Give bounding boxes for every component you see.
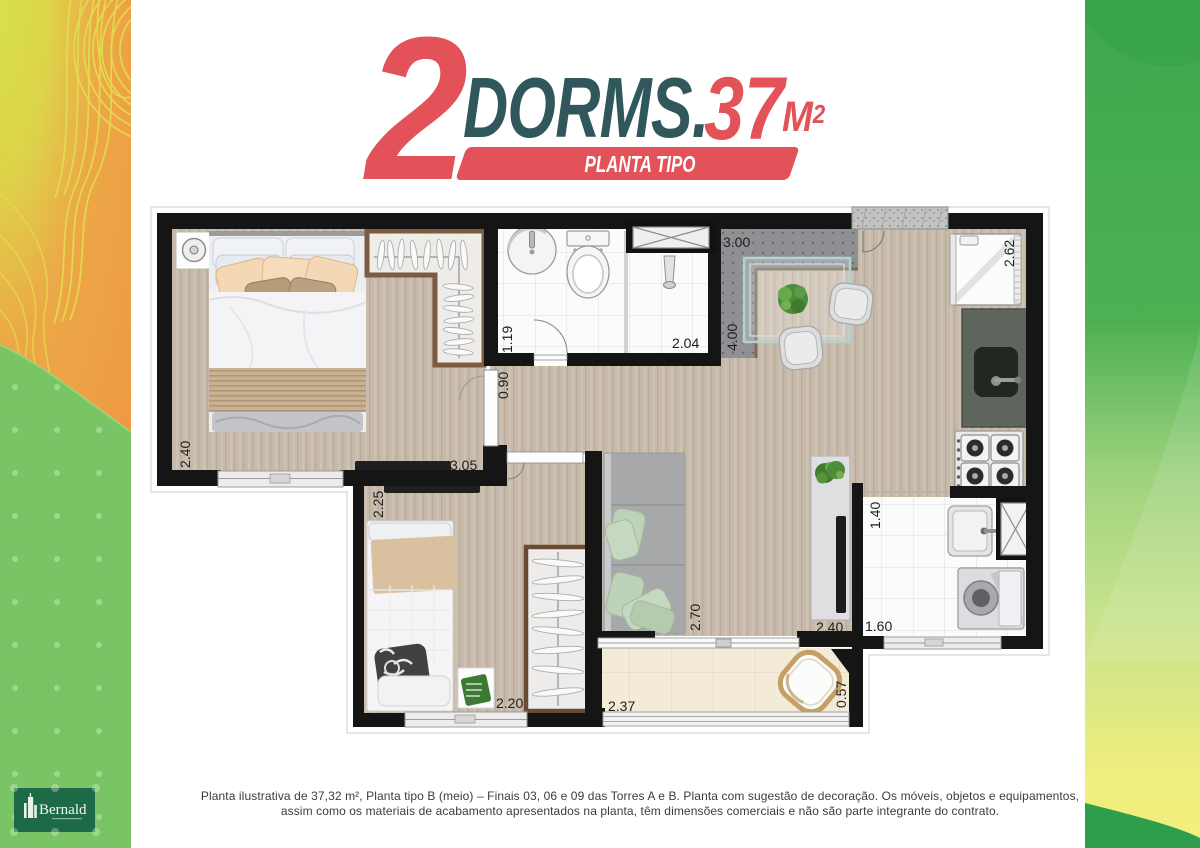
svg-text:2.37: 2.37: [608, 698, 635, 714]
svg-text:0.57: 0.57: [833, 681, 849, 708]
svg-text:Bernald: Bernald: [39, 802, 87, 818]
svg-text:2.62: 2.62: [1001, 240, 1017, 267]
svg-text:2.70: 2.70: [687, 604, 703, 631]
svg-text:2.20: 2.20: [496, 695, 523, 711]
svg-text:2.04: 2.04: [672, 335, 699, 351]
svg-text:3.05: 3.05: [450, 457, 477, 473]
svg-text:0.90: 0.90: [495, 372, 511, 399]
svg-text:4.00: 4.00: [724, 324, 740, 351]
svg-text:1.60: 1.60: [865, 618, 892, 634]
svg-text:3.00: 3.00: [723, 234, 750, 250]
svg-text:1.19: 1.19: [499, 326, 515, 353]
svg-text:2.40: 2.40: [816, 619, 843, 635]
svg-text:2.25: 2.25: [370, 491, 386, 518]
svg-text:1.40: 1.40: [867, 502, 883, 529]
svg-text:2.40: 2.40: [177, 441, 193, 468]
